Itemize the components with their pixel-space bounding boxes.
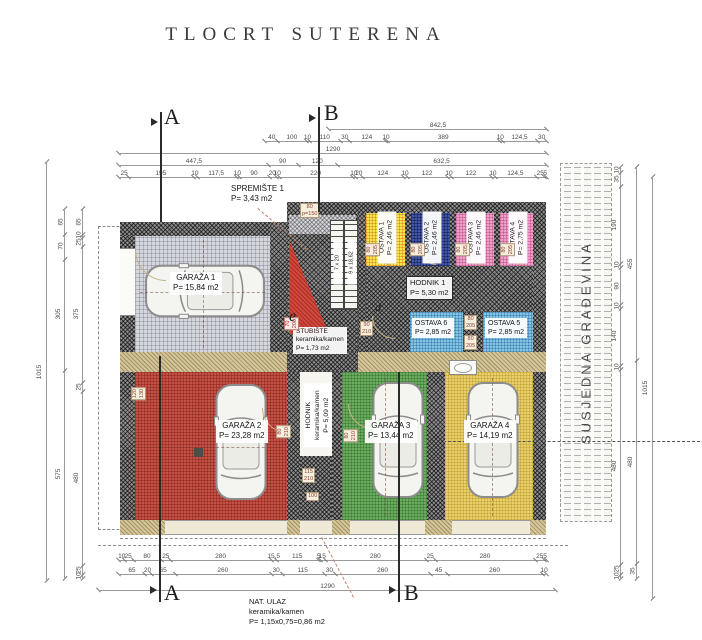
dashed-line-below-2 xyxy=(98,545,568,546)
room-area: P= 3,43 m2 xyxy=(231,194,284,204)
dim-segment: 1015 xyxy=(36,163,47,580)
axis-garaza3-v xyxy=(385,378,386,516)
section-letter-a-top: A xyxy=(164,104,180,130)
dim-segment: 25 xyxy=(124,550,133,561)
tag-garaza2-window: 120130 xyxy=(131,387,146,400)
dim-segment: 115 xyxy=(282,564,324,575)
dim-left-1015: 1015 xyxy=(36,163,47,580)
dim-top-row4: 2519510117,51090201022010201241012210122… xyxy=(120,167,546,178)
room-area: P= 1,15x0,75=0,86 m2 xyxy=(249,617,325,627)
section-line-a-bottom xyxy=(159,356,161,602)
dim-segment: 35 xyxy=(626,563,637,578)
label-stubiste: STUBIŠTE keramika/kamen P= 1,73 m2 xyxy=(293,327,347,354)
tag-ostava4-door: 80205 xyxy=(500,243,515,256)
dim-segment: 30 xyxy=(271,564,282,575)
dim-segment: 375 xyxy=(72,246,83,382)
tag-line: 115 xyxy=(304,469,313,476)
tag-ulaz-width: 100 xyxy=(306,492,319,501)
garage-door-garaza2 xyxy=(165,520,287,535)
tag-ostava5-door: 80205 xyxy=(464,335,477,350)
dim-segment: 65 xyxy=(120,564,144,575)
tag-line: 120 xyxy=(132,389,139,398)
dim-segment: 124,5 xyxy=(495,167,536,178)
dim-segment: 25 xyxy=(120,167,128,178)
dim-segment: 30 xyxy=(324,564,335,575)
dim-segment: 260 xyxy=(175,564,270,575)
room-name: OSTAVA 5 xyxy=(488,319,524,328)
wall-hodnik-garaza3 xyxy=(332,372,342,520)
dim-top-1290: 1290 xyxy=(120,143,546,154)
dim-segment: 70 xyxy=(54,234,65,259)
tag-line: 80 xyxy=(302,204,317,211)
dim-segment: 115 xyxy=(276,550,317,561)
tag-line: 205 xyxy=(373,245,380,254)
dim-segment: 447,5 xyxy=(120,155,268,166)
label-hodnik-1: HODNIK 1 P= 5,30 m2 xyxy=(406,276,453,300)
dim-segment: 632,5 xyxy=(337,155,546,166)
wall-top-mid xyxy=(287,202,546,213)
dim-segment: 45 xyxy=(430,564,447,575)
dim-segment: 35 xyxy=(610,172,621,186)
sink xyxy=(449,360,477,375)
room-area: P= 2,85 m2 xyxy=(488,328,524,337)
wall-ostava-3-4 xyxy=(494,212,500,266)
dim-segment: 124 xyxy=(349,131,385,142)
dim-segment: 100 xyxy=(277,131,306,142)
section-letter-a-bottom: A xyxy=(164,580,180,606)
room-area: P= 2,46 m2 xyxy=(476,213,484,261)
room-name: GARAŽA 4 xyxy=(467,421,513,431)
label-garaza-2: GARAŽA 2 P= 23,28 m2 xyxy=(216,420,268,443)
tag-line: 205 xyxy=(508,245,515,254)
dim-segment: 40 xyxy=(266,131,277,142)
dim-segment: 20 xyxy=(144,564,151,575)
tag-line: 210 xyxy=(362,329,371,336)
dim-segment: 117,5 xyxy=(197,167,236,178)
dim-segment: 25 xyxy=(72,382,83,391)
room-area: P= 23,28 m2 xyxy=(219,431,265,441)
dim-segment: 90 xyxy=(610,267,621,304)
section-arrow-b-top xyxy=(309,114,320,122)
tag-garaza2-door: 80210 xyxy=(276,425,291,438)
dim-segment: 65 xyxy=(151,564,175,575)
dim-segment: 389 xyxy=(387,131,498,142)
wall-garaza2-hodnik xyxy=(287,372,300,520)
tag-ostava6-door: 80205 xyxy=(464,315,477,330)
dim-left-inner: 651025375254802510 xyxy=(72,210,83,578)
neighbor-building: SUSJEDNA GRAĐEVINA xyxy=(560,163,612,522)
label-ostava-5: OSTAVA 5 P= 2,85 m2 xyxy=(485,318,527,338)
tag-stair-window: 80p=150 xyxy=(300,203,319,218)
tag-ostava3-door: 80205 xyxy=(455,243,470,256)
garage-door-garaza1-gap xyxy=(120,248,135,316)
dim-segment: 20 xyxy=(355,167,362,178)
label-hodnik: HODNIK keramika/kamen P= 5,09 m2 xyxy=(304,383,332,447)
dim-segment: 110 xyxy=(309,131,341,142)
section-letter-b-top: B xyxy=(324,100,339,126)
label-ostava-1: OSTAVA 1 P= 2,46 m2 xyxy=(378,211,397,263)
hodnik-stair-down xyxy=(300,456,332,520)
dim-segment: 90 xyxy=(239,167,269,178)
dim-segment: 190 xyxy=(610,186,621,263)
dim-segment: 10 xyxy=(610,574,621,578)
label-garaza-4: GARAŽA 4 P= 14,19 m2 xyxy=(464,420,516,443)
dim-segment: 30 xyxy=(537,131,546,142)
room-area: P= 15,84 m2 xyxy=(173,283,219,293)
dim-segment: 280 xyxy=(170,550,271,561)
dim-segment: 480 xyxy=(610,369,621,564)
dim-segment: 10 xyxy=(542,564,546,575)
wall-garaza3-garaza4 xyxy=(427,372,445,520)
dim-segment: 25 xyxy=(426,550,435,561)
room-material: keramika/kamen xyxy=(249,607,325,617)
room-area: P= 2,46 m2 xyxy=(432,213,440,261)
dim-segment: 25 xyxy=(72,237,83,246)
wall-mid-under-stair xyxy=(287,352,358,372)
wall-ostava-1-2 xyxy=(405,212,411,266)
wall-garaza1-stair xyxy=(270,222,287,354)
tag-line: 80 xyxy=(344,431,351,440)
dim-segment: 65 xyxy=(72,210,83,234)
dim-right-mid: 45548035 xyxy=(626,168,637,578)
room-material: keramika/kamen xyxy=(296,336,344,344)
tag-line: 205 xyxy=(418,245,425,254)
dim-segment: 30 xyxy=(340,131,349,142)
dim-segment: 220 xyxy=(279,167,352,178)
tag-ostava2-door: 80205 xyxy=(410,243,425,256)
dim-left-outer: 6570305575 xyxy=(54,210,65,578)
tag-line: 210 xyxy=(304,476,313,483)
dim-segment: 280 xyxy=(435,550,536,561)
label-nat-ulaz: NAT. ULAZ keramika/kamen P= 1,15x0,75=0,… xyxy=(246,596,328,627)
dim-segment: 260 xyxy=(447,564,542,575)
tag-stubiste-door: 90210 xyxy=(360,321,373,336)
label-spremiste-1: SPREMIŠTE 1 P= 3,43 m2 xyxy=(228,183,287,206)
tag-line: 205 xyxy=(466,343,475,350)
room-name: SPREMIŠTE 1 xyxy=(231,184,284,194)
section-letter-b-bottom: B xyxy=(404,580,419,606)
dim-segment: 1290 xyxy=(120,143,546,154)
dim-segment: 5 xyxy=(544,550,546,561)
room-name: NAT. ULAZ xyxy=(249,597,325,607)
dim-segment: 124,5 xyxy=(502,131,538,142)
room-name: GARAŽA 1 xyxy=(173,273,219,283)
dim-segment: 140 xyxy=(610,308,621,365)
neighbor-building-label: SUSJEDNA GRAĐEVINA xyxy=(561,164,611,521)
section-arrow-b-bottom xyxy=(389,586,400,594)
room-name: HODNIK xyxy=(305,385,314,445)
section-line-a-top xyxy=(160,112,162,222)
room-area: P= 13,44 m2 xyxy=(368,431,414,441)
tag-line: 90 xyxy=(362,322,371,329)
label-garaza-1: GARAŽA 1 P= 15,84 m2 xyxy=(170,272,222,295)
dim-segment: 842,5 xyxy=(330,119,546,130)
dim-segment: 305 xyxy=(54,259,65,370)
section-line-b-top xyxy=(318,107,320,212)
floor-plan-page: { "title": "TLOCRT SUTERENA", "section_m… xyxy=(0,0,702,640)
tag-line: 80 xyxy=(501,245,508,254)
dim-right-1015: 1015 xyxy=(642,178,653,598)
dim-segment: 455 xyxy=(626,168,637,360)
room-name: GARAŽA 3 xyxy=(368,421,414,431)
dim-bottom-row2: 65206526030115302604526010 xyxy=(120,564,546,575)
axis-garaza2-h xyxy=(140,447,280,448)
dim-segment: 122 xyxy=(451,167,492,178)
dim-segment: 480 xyxy=(626,360,637,563)
dim-top-row1: 4010010110301241038910124,530 xyxy=(266,131,546,142)
dim-segment: 90 xyxy=(268,155,298,166)
dim-segment: 65 xyxy=(54,210,65,234)
sink-bowl xyxy=(454,363,472,373)
section-arrow-a-top xyxy=(151,118,162,126)
room-area: P= 2,85 m2 xyxy=(415,328,451,337)
dim-segment: 1015 xyxy=(642,178,653,598)
marker-e: e xyxy=(289,308,296,326)
dim-segment: 25 xyxy=(161,550,170,561)
tag-line: 210 xyxy=(351,431,358,440)
stair-flight1-label: 7 x 20 xyxy=(333,241,342,285)
garage-door-garaza3 xyxy=(350,520,425,535)
axis-garaza4-v xyxy=(492,378,493,516)
dim-segment: 10 xyxy=(72,574,83,578)
room-name: HODNIK 1 xyxy=(410,278,449,288)
wall-ostava-2-3 xyxy=(450,212,456,266)
dim-segment: 124 xyxy=(362,167,403,178)
dim-segment: 280 xyxy=(325,550,426,561)
section-line-b-bottom xyxy=(398,372,400,602)
label-ostava-2: OSTAVA 2 P= 2,46 m2 xyxy=(423,211,442,263)
tag-ulaz-door: 115210 xyxy=(302,468,315,483)
tag-line: 80 xyxy=(466,316,475,323)
page-title: TLOCRT SUTERENA xyxy=(0,24,612,46)
stair-flight2-label: 9 x 18,62 xyxy=(347,241,356,285)
dim-top-row3: 447,590120632,5 xyxy=(120,155,546,166)
dim-segment: 122 xyxy=(407,167,448,178)
room-name: GARAŽA 2 xyxy=(219,421,265,431)
room-area: P= 14,19 m2 xyxy=(467,431,513,441)
dim-segment: 260 xyxy=(335,564,430,575)
label-ostava-6: OSTAVA 6 P= 2,85 m2 xyxy=(412,318,454,338)
room-name: STUBIŠTE xyxy=(296,328,344,336)
tag-line: 205 xyxy=(463,245,470,254)
dashed-line-below-1 xyxy=(120,538,546,539)
room-area: P= 5,09 m2 xyxy=(322,385,331,445)
room-area: P= 2,46 m2 xyxy=(387,213,395,261)
dim-segment: 80 xyxy=(133,550,162,561)
marker-d: d xyxy=(375,300,381,315)
tag-line: 100 xyxy=(308,493,317,500)
dim-right-inner: 1035190109010140104802510 xyxy=(610,168,621,578)
entry-door-nat-ulaz xyxy=(300,520,332,535)
room-area: P= 5,30 m2 xyxy=(410,288,449,298)
tag-line: 205 xyxy=(466,323,475,330)
room-area: P= 1,73 m2 xyxy=(296,345,344,353)
garage-door-garaza4 xyxy=(452,520,530,535)
tag-line: 210 xyxy=(284,427,291,436)
label-garaza-3: GARAŽA 3 P= 13,44 m2 xyxy=(365,420,417,443)
tag-ostava1-door: 80205 xyxy=(365,243,380,256)
tag-line: p=150 xyxy=(302,211,317,218)
tag-line: 80 xyxy=(456,245,463,254)
wall-top-garaza1 xyxy=(120,222,287,236)
dim-segment: 480 xyxy=(72,391,83,565)
tag-line: 80 xyxy=(411,245,418,254)
room-name: OSTAVA 6 xyxy=(415,319,451,328)
dim-segment: 575 xyxy=(54,370,65,578)
tag-line: 80 xyxy=(366,245,373,254)
room-area: P= 2,75 m2 xyxy=(518,213,526,261)
tag-line: 80 xyxy=(277,427,284,436)
dim-segment: 5 xyxy=(544,167,546,178)
dim-top-842: 842,5 xyxy=(330,119,546,130)
tag-garaza3-door: 80210 xyxy=(343,429,358,442)
section-arrow-a-bottom xyxy=(150,586,161,594)
tag-line: 130 xyxy=(139,389,146,398)
tag-line: 80 xyxy=(466,336,475,343)
room-material: keramika/kamen xyxy=(314,385,323,445)
